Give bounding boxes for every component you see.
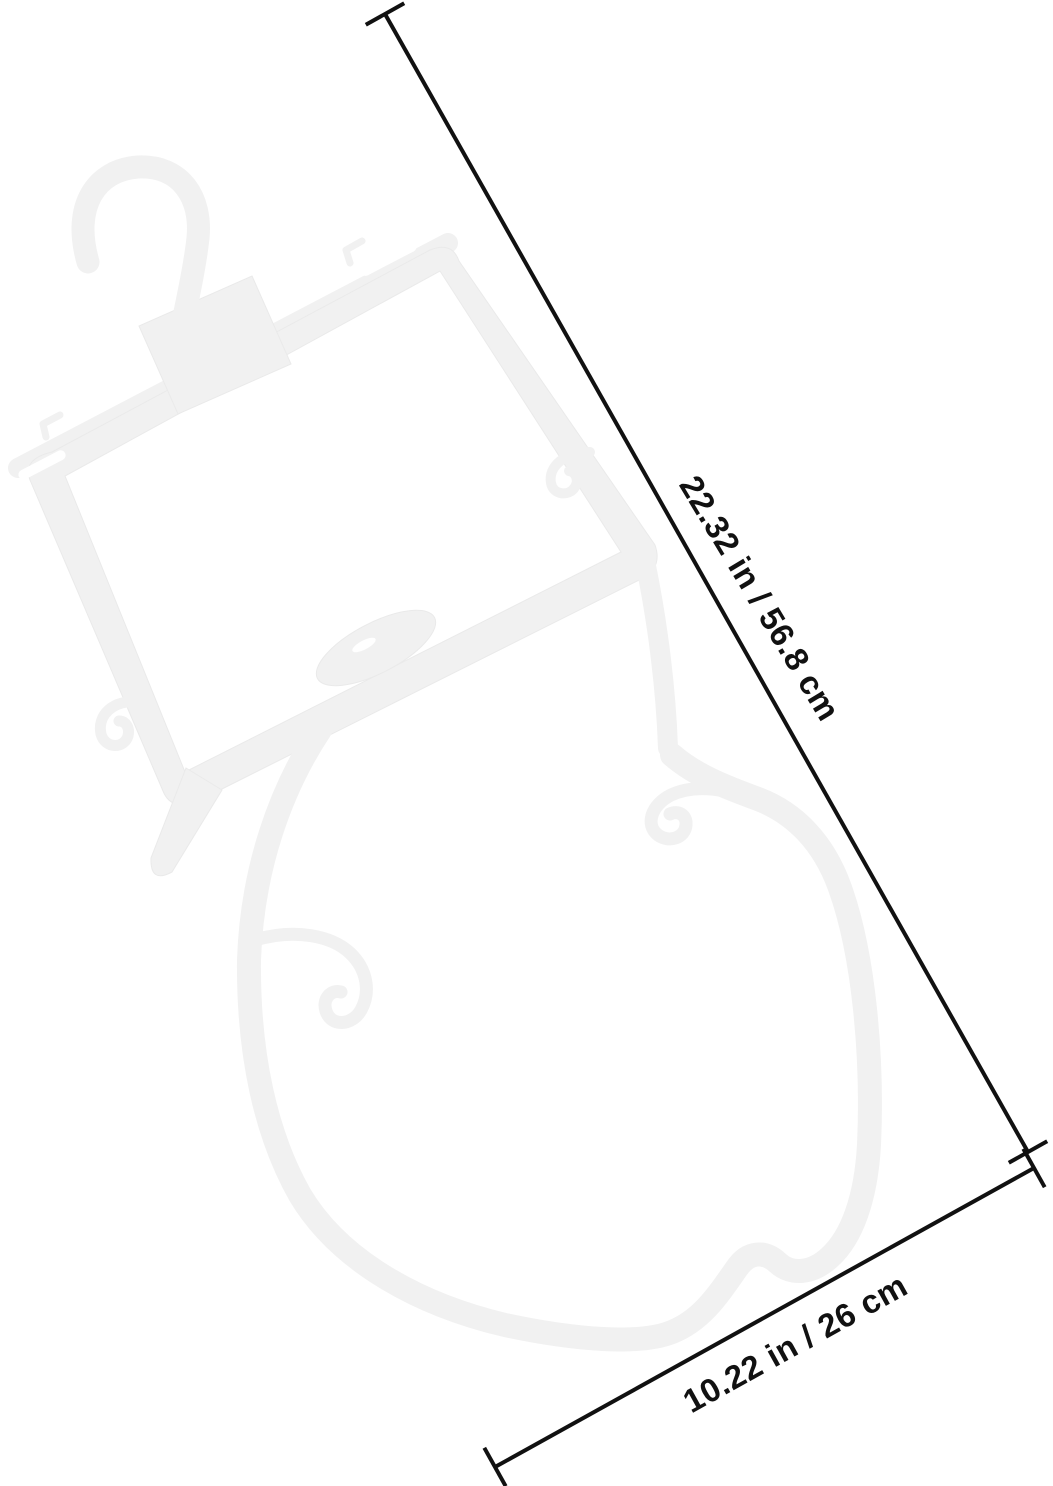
width-tick-left bbox=[484, 1448, 505, 1486]
dimension-annotations: 22.32 in / 56.8 cm 10.22 in / 26 cm bbox=[366, 3, 1047, 1486]
hanger bbox=[17, 167, 870, 1340]
length-tick-top bbox=[366, 3, 404, 25]
hanger-hook bbox=[83, 167, 198, 312]
length-label: 22.32 in / 56.8 cm bbox=[672, 469, 847, 727]
hanger-lower-loop bbox=[249, 730, 870, 1339]
width-tick-right bbox=[1023, 1149, 1044, 1187]
left-bar-notch bbox=[43, 415, 60, 437]
loop-right-curl-icon bbox=[651, 789, 748, 839]
loop-left-curl-icon bbox=[255, 934, 366, 1022]
hanger-right-extension bbox=[646, 566, 668, 748]
product-photo: 22.32 in / 56.8 cm 10.22 in / 26 cm bbox=[0, 0, 1053, 1486]
right-bar-notch bbox=[346, 241, 362, 263]
length-dimension-line bbox=[385, 14, 1028, 1152]
width-dimension-line bbox=[495, 1168, 1034, 1467]
width-dimension: 10.22 in / 26 cm bbox=[484, 1149, 1044, 1486]
hanger-dimension-diagram: 22.32 in / 56.8 cm 10.22 in / 26 cm bbox=[0, 0, 1053, 1486]
length-dimension: 22.32 in / 56.8 cm bbox=[366, 3, 1047, 1163]
